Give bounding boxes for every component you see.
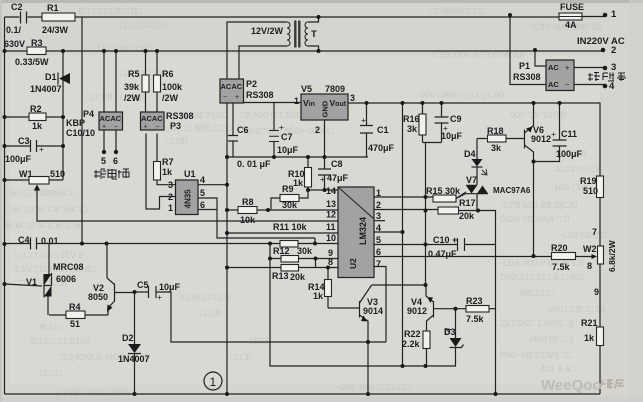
svg-text:20k: 20k [459, 211, 475, 221]
svg-text:1k: 1k [293, 178, 304, 188]
svg-text:P1: P1 [519, 61, 530, 71]
svg-text:/2W: /2W [124, 93, 141, 103]
svg-text:C8: C8 [331, 159, 343, 169]
svg-text:1: 1 [611, 9, 617, 20]
svg-text:R21: R21 [581, 318, 598, 328]
svg-text:24/3W: 24/3W [42, 25, 69, 35]
svg-text:14: 14 [326, 186, 336, 196]
svg-text:/2W: /2W [162, 93, 179, 103]
svg-text:C6: C6 [237, 125, 249, 135]
svg-text:R12: R12 [273, 246, 290, 256]
svg-text:R8: R8 [242, 197, 254, 207]
svg-text:7: 7 [376, 259, 381, 269]
svg-text:MRC08: MRC08 [53, 262, 84, 272]
svg-text:47μF: 47μF [327, 173, 349, 183]
svg-text:R5: R5 [128, 69, 140, 79]
svg-text:+: + [39, 144, 44, 154]
svg-text:+: + [279, 122, 284, 132]
svg-text:W2: W2 [583, 244, 597, 254]
svg-text:+: + [361, 115, 366, 125]
svg-text:1: 1 [168, 203, 173, 213]
svg-text:4N35: 4N35 [184, 189, 193, 209]
svg-text:D02□□□□□□□6 □ 002: D02□□□□□□□6 □ 002 [500, 272, 585, 282]
svg-text:GND: GND [321, 100, 330, 117]
svg-text:P2: P2 [246, 79, 257, 89]
svg-text:1k: 1k [32, 121, 43, 131]
svg-text:V5: V5 [301, 84, 312, 94]
svg-text:1k: 1k [162, 167, 173, 177]
svg-text:T: T [311, 29, 317, 40]
svg-text:8□□□: 8□□□ [40, 322, 62, 332]
svg-text:+: + [565, 63, 570, 72]
svg-text:C10/10: C10/10 [66, 128, 95, 138]
svg-text:V7: V7 [466, 175, 477, 185]
svg-text:R15 30k: R15 30k [426, 186, 461, 196]
svg-text:11: 11 [326, 222, 336, 232]
svg-text:□6□□,□□88866□□: □6□□,□□88866□□ [6, 188, 77, 198]
svg-text:401 8 6□: 401 8 6□ [540, 364, 576, 374]
svg-text:R17: R17 [459, 198, 476, 208]
svg-text:U1: U1 [184, 169, 196, 179]
svg-text:C7: C7 [281, 132, 293, 142]
svg-text:5: 5 [200, 188, 205, 198]
svg-text:C5: C5 [137, 280, 149, 290]
svg-text:10μF: 10μF [159, 282, 181, 292]
svg-text:R22: R22 [404, 329, 421, 339]
svg-text:LM324: LM324 [358, 217, 368, 245]
svg-text:C4: C4 [18, 235, 30, 245]
svg-text:000 '05 '010.0: 000 '05 '010.0 [510, 110, 566, 120]
svg-text:R6: R6 [162, 69, 174, 79]
svg-text:□□□6: □□□6 [230, 352, 251, 362]
svg-text:0. 01 μF: 0. 01 μF [237, 159, 271, 169]
svg-text:−: − [223, 94, 227, 101]
svg-text:RS308: RS308 [513, 72, 541, 82]
svg-text:4: 4 [376, 223, 381, 233]
svg-text:13: 13 [326, 199, 336, 209]
svg-text:5: 5 [376, 235, 381, 245]
svg-text:1: 1 [376, 188, 381, 198]
svg-text:R11 10k: R11 10k [273, 222, 308, 232]
svg-text:6006: 6006 [56, 274, 76, 284]
svg-text:+: + [235, 94, 239, 101]
svg-text:2.2k: 2.2k [402, 339, 421, 349]
svg-text:FUSE: FUSE [560, 2, 584, 12]
svg-text:C11: C11 [561, 129, 577, 139]
svg-text:+: + [320, 174, 325, 184]
svg-text:10μF: 10μF [277, 145, 299, 155]
svg-text:4L01 □ □□6: 4L01 □ □□6 [555, 164, 601, 174]
svg-text:9: 9 [594, 287, 599, 297]
svg-text:R7: R7 [162, 157, 174, 167]
svg-text:+: + [551, 129, 556, 139]
svg-text:10: 10 [326, 233, 336, 243]
svg-text:0026 0806SA □ 0: 0026 0806SA □ 0 [500, 214, 570, 224]
svg-text:IN220V AC: IN220V AC [577, 36, 625, 47]
svg-text:6: 6 [200, 200, 205, 210]
svg-text:ACAC: ACAC [221, 82, 243, 91]
svg-text:9012: 9012 [531, 134, 551, 144]
svg-text:R3: R3 [31, 38, 43, 48]
svg-text:R1: R1 [47, 3, 59, 13]
svg-text:AC: AC [548, 80, 559, 89]
svg-text:8□□□□□□8□□0□: 8□□□□□□8□□0□ [78, 6, 143, 16]
svg-text:C10 +: C10 + [433, 235, 457, 245]
svg-text:R13: R13 [272, 271, 289, 281]
svg-text:1N4007: 1N4007 [30, 84, 62, 94]
svg-text:R9: R9 [282, 184, 294, 194]
svg-text:C2: C2 [11, 2, 23, 12]
svg-text:R20: R20 [551, 243, 568, 253]
svg-text:4A: 4A [565, 20, 577, 30]
svg-text:12: 12 [326, 210, 336, 220]
svg-text:R2: R2 [30, 104, 42, 114]
svg-text:5: 5 [101, 156, 106, 166]
svg-text:R4: R4 [69, 302, 81, 312]
svg-text:3: 3 [350, 93, 355, 103]
svg-text:20k: 20k [290, 272, 306, 282]
svg-text:V1: V1 [26, 277, 37, 287]
svg-text:ACAC: ACAC [141, 114, 163, 123]
svg-text:2: 2 [376, 200, 381, 210]
svg-text:(□□)8□, □0□□□886: (□□)8□, □0□□□886 [56, 388, 130, 398]
svg-text:1: 1 [294, 96, 299, 106]
svg-text:1N4007: 1N4007 [118, 354, 150, 364]
svg-text:510: 510 [50, 169, 65, 179]
svg-text:6.8k/2W: 6.8k/2W [607, 239, 617, 272]
svg-text:W1: W1 [19, 169, 33, 179]
svg-text:3: 3 [611, 62, 616, 73]
svg-text:C1: C1 [377, 125, 389, 135]
svg-text:2)□□00□ 1-00(6 □): 2)□□00□ 1-00(6 □) [500, 318, 574, 328]
svg-text:39k: 39k [124, 82, 140, 92]
svg-text:P3: P3 [170, 121, 181, 131]
svg-text:□8'A00 0□□500: □8'A00 0□□500 [240, 110, 302, 120]
svg-text:100μF: 100μF [5, 154, 32, 164]
svg-text:8: 8 [328, 257, 333, 267]
svg-text:000 □A00 □□□□□□80: 000 □A00 □□□□□□80 [420, 90, 504, 100]
svg-text:7.5k: 7.5k [466, 314, 485, 324]
svg-text:6: 6 [376, 247, 381, 257]
svg-text:−: − [156, 124, 160, 131]
svg-text:7.5k: 7.5k [552, 262, 571, 272]
svg-text:510: 510 [583, 186, 598, 196]
svg-text:30k: 30k [282, 200, 298, 210]
svg-text:8: 8 [587, 261, 592, 271]
svg-text:1: 1 [210, 375, 217, 389]
svg-text:630V: 630V [4, 39, 25, 49]
svg-text:100μF: 100μF [556, 149, 583, 159]
svg-text:1k: 1k [313, 291, 324, 301]
svg-text:R16: R16 [403, 114, 420, 124]
svg-text:0.01: 0.01 [41, 236, 59, 246]
svg-text:0.33/5W: 0.33/5W [15, 57, 49, 67]
svg-text:WeeQoo: WeeQoo [541, 377, 602, 394]
svg-text:68'□□□□: 68'□□□□ [520, 288, 554, 298]
svg-text:D1: D1 [45, 72, 57, 82]
svg-text:□□,□□0□□□: □□,□□0□□□ [120, 20, 166, 30]
svg-text:470μF: 470μF [368, 143, 395, 153]
svg-text:C9: C9 [450, 114, 462, 124]
svg-text:6: 6 [113, 156, 118, 166]
svg-text:2: 2 [315, 125, 320, 135]
svg-text:H00 0(□ □): H00 0(□ □) [530, 334, 573, 344]
svg-text:R18: R18 [487, 126, 504, 136]
svg-text:7: 7 [592, 227, 597, 237]
svg-text:+: + [157, 292, 162, 302]
svg-text:□□(8): □□(8) [166, 136, 188, 146]
svg-text:7809: 7809 [325, 84, 345, 94]
svg-text:RS308: RS308 [166, 111, 194, 121]
svg-text:AC: AC [548, 63, 559, 72]
svg-text:□□□□: □□□□ [40, 368, 62, 378]
svg-text:100k: 100k [162, 82, 183, 92]
svg-text:3k: 3k [407, 124, 418, 134]
svg-text:9012: 9012 [407, 306, 427, 316]
svg-text:□,6□:□□6□□8□68□(□: □,6□:□□6□□8□68□(□ [6, 204, 89, 214]
svg-text:0.47μF: 0.47μF [428, 249, 457, 259]
svg-text:4: 4 [609, 81, 615, 92]
svg-text:2: 2 [168, 192, 173, 202]
svg-text:0.1/: 0.1/ [6, 25, 22, 35]
svg-text:C3: C3 [18, 136, 30, 146]
svg-text:-CP8 600 88□0(□)0: -CP8 600 88□0(□)0 [500, 200, 577, 210]
svg-text:□□□8: □□□8 [200, 308, 221, 318]
svg-text:−: − [114, 124, 118, 131]
svg-text:3k: 3k [491, 143, 502, 153]
svg-text:−: − [565, 80, 570, 89]
svg-text:P60- 08□□□V9 □□: P60- 08□□□V9 □□ [500, 350, 573, 360]
svg-text:μ00 □□9□□ 10: μ00 □□9□□ 10 [548, 304, 605, 314]
svg-text:8050: 8050 [88, 292, 108, 302]
svg-text:10k: 10k [240, 215, 256, 225]
svg-text:KBP: KBP [66, 118, 85, 128]
svg-text:U2: U2 [348, 258, 358, 269]
svg-text:R19: R19 [580, 176, 597, 186]
svg-text:6□□□:□□□6169: 6□□□:□□□6169 [30, 336, 90, 346]
svg-text:MAC97A6: MAC97A6 [493, 186, 531, 195]
svg-text:RS308: RS308 [246, 90, 274, 100]
svg-text:(□□6□□□□□6: (□□6□□□□□6 [180, 292, 231, 302]
svg-text:R23: R23 [466, 296, 483, 306]
svg-text:+: + [144, 124, 148, 131]
svg-text:9014: 9014 [363, 306, 383, 316]
svg-text:D2: D2 [122, 333, 134, 343]
svg-text:D3: D3 [444, 327, 456, 337]
svg-text:3: 3 [376, 211, 381, 221]
svg-text:ACAC: ACAC [100, 114, 122, 123]
svg-text:+: + [102, 124, 106, 131]
svg-text:□□□0: □□□0 [250, 336, 271, 346]
svg-text:12V/2W: 12V/2W [251, 26, 284, 36]
svg-text:D4: D4 [464, 149, 476, 159]
svg-text:□□,6666□□□□: □□,6666□□□□ [430, 6, 486, 16]
svg-text:000 '000 □□□□□□: 000 '000 □□□□□□ [340, 382, 410, 392]
svg-text:4: 4 [200, 175, 205, 185]
svg-text:30k: 30k [297, 246, 313, 256]
svg-text:10μF: 10μF [441, 131, 463, 141]
svg-text:51: 51 [70, 319, 80, 329]
svg-text:1k: 1k [584, 333, 595, 343]
svg-text:3: 3 [168, 180, 173, 190]
